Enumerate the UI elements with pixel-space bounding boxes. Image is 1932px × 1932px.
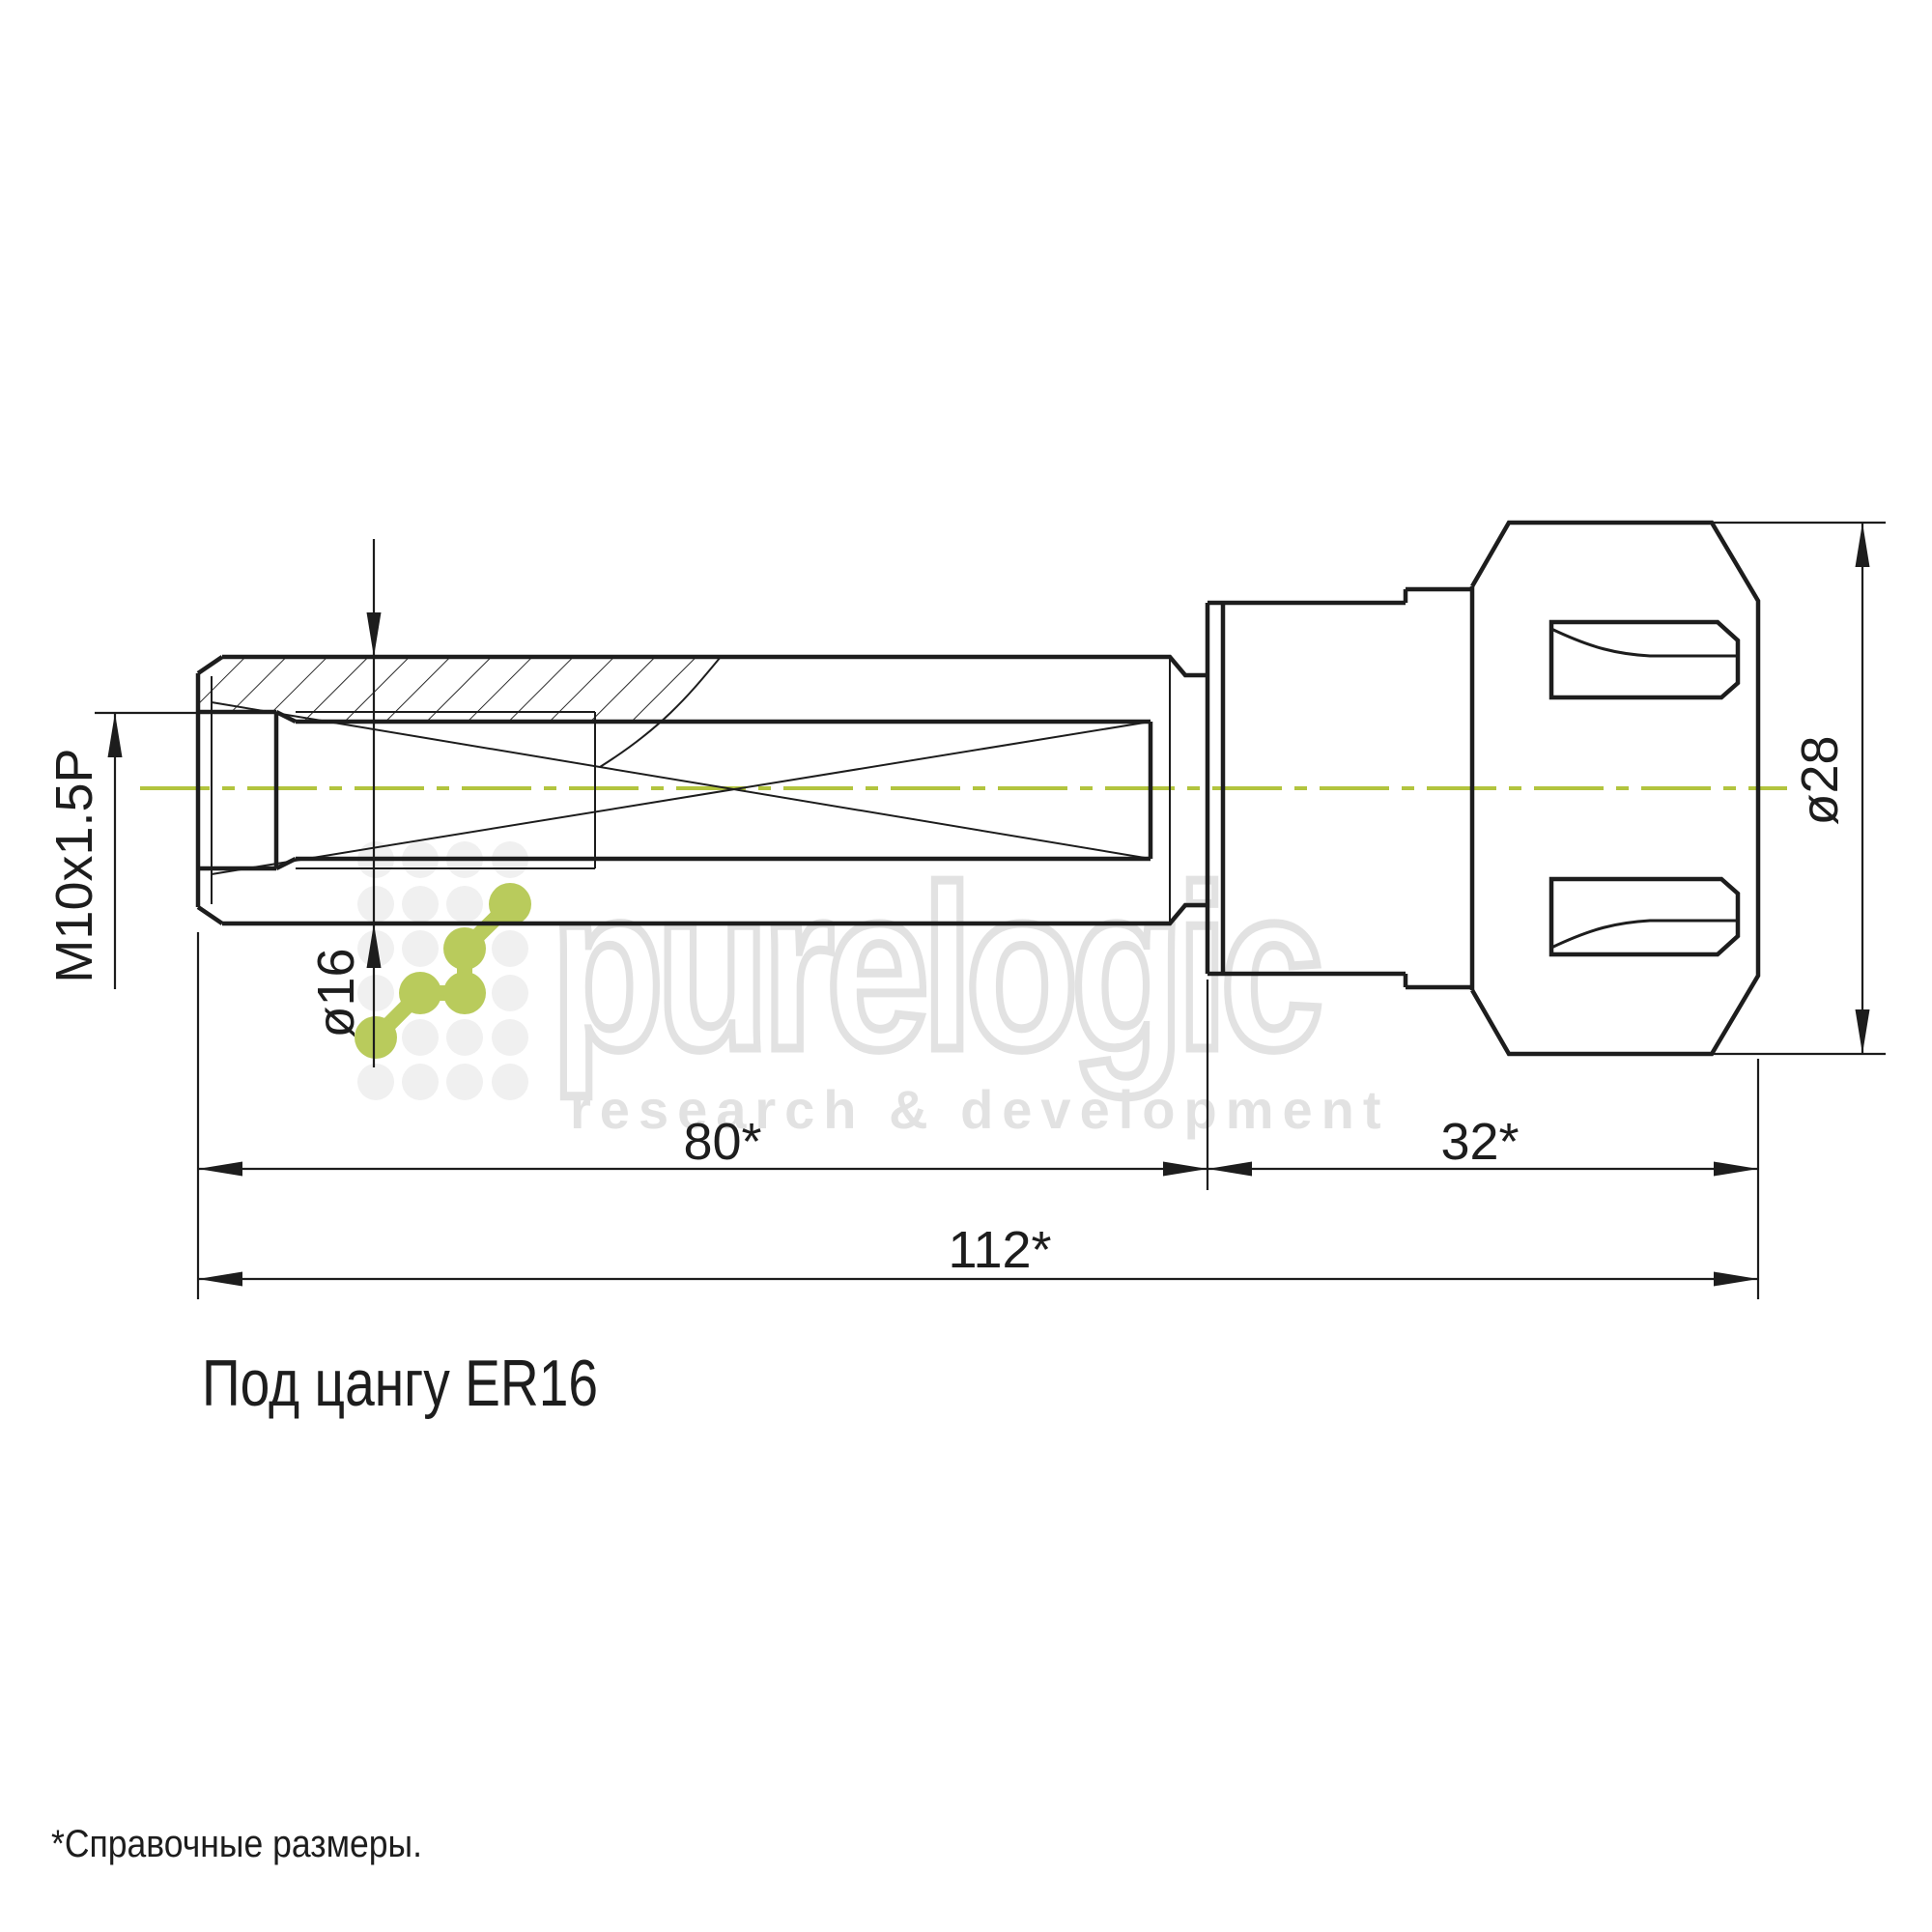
drawing-page: purelogic research & development (0, 0, 1932, 1932)
logo-dot-green (489, 883, 531, 925)
logo-dot (357, 1064, 394, 1100)
label-thread: M10x1.5P (45, 748, 103, 982)
logo-dot-green (443, 927, 486, 970)
drawing-footnote: *Справочные размеры. (51, 1823, 422, 1865)
logo-dot (492, 1019, 528, 1056)
logo-dot (402, 930, 439, 967)
logo-dot (402, 886, 439, 923)
logo-dot-green (399, 972, 441, 1014)
logo-dot (357, 886, 394, 923)
logo-dot (446, 1019, 483, 1056)
label-shaft-diameter: ø16 (307, 948, 365, 1037)
logo-dot (492, 975, 528, 1011)
logo-dot (402, 1019, 439, 1056)
logo-dot (402, 1064, 439, 1100)
logo-dot-green (443, 972, 486, 1014)
logo-dot (492, 930, 528, 967)
label-nut-length: 32* (1440, 1113, 1519, 1171)
label-overall-length: 112* (948, 1221, 1051, 1279)
watermark-brand: purelogic (551, 839, 1319, 1098)
label-body-length: 80* (683, 1113, 761, 1171)
drawing-title: Под цангу ER16 (202, 1347, 598, 1420)
logo-dot (492, 1064, 528, 1100)
logo-dot (446, 886, 483, 923)
watermark: purelogic research & development (355, 839, 1389, 1140)
label-nut-diameter: ø28 (1791, 735, 1849, 825)
logo-dot (446, 1064, 483, 1100)
logo-dots (355, 841, 531, 1100)
technical-drawing: purelogic research & development (0, 0, 1932, 1932)
